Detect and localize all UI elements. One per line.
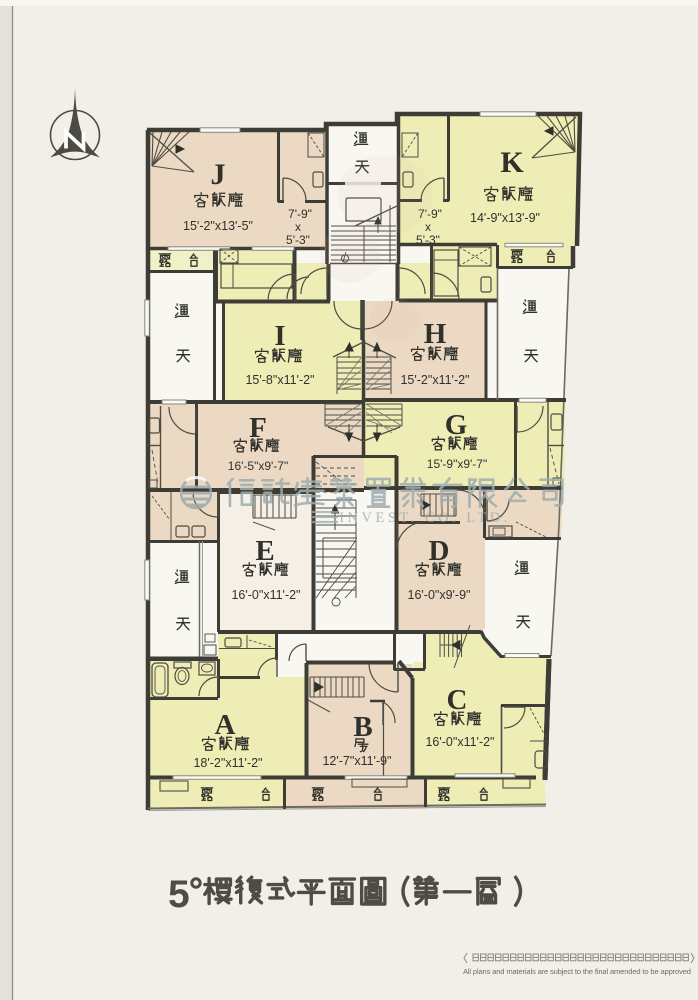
svg-text:I: I [274, 320, 285, 352]
svg-text:D: D [429, 535, 450, 567]
svg-text:15'-8"x11'-2": 15'-8"x11'-2" [245, 373, 314, 387]
svg-text:INVEST. CO. LTD.: INVEST. CO. LTD. [339, 510, 511, 526]
svg-text:14'-9"x13'-9": 14'-9"x13'-9" [470, 211, 540, 225]
svg-text:5'-3": 5'-3" [416, 233, 440, 247]
svg-text:5'-3": 5'-3" [286, 233, 310, 247]
svg-text:E: E [255, 535, 274, 567]
svg-text:15'-2"x13'-5": 15'-2"x13'-5" [183, 219, 253, 233]
svg-text:G: G [445, 409, 468, 441]
svg-text:16'-0"x11'-2": 16'-0"x11'-2" [425, 735, 494, 749]
svg-text:16'-0"x9'-9": 16'-0"x9'-9" [408, 588, 471, 602]
svg-text:18'-2"x11'-2": 18'-2"x11'-2" [193, 756, 262, 770]
svg-text:16'-0"x11'-2": 16'-0"x11'-2" [231, 588, 300, 602]
svg-text:A: A [215, 709, 236, 741]
svg-text:B: B [353, 711, 372, 743]
svg-text:7'-9": 7'-9" [288, 207, 312, 221]
svg-text:C: C [447, 684, 468, 716]
svg-text:x: x [425, 220, 431, 234]
svg-text:K: K [500, 146, 524, 179]
svg-text:5: 5 [168, 873, 190, 916]
svg-text:H: H [424, 318, 447, 350]
svg-text:15'-9"x9'-7": 15'-9"x9'-7" [427, 457, 487, 471]
svg-text:12'-7"x11'-9": 12'-7"x11'-9" [322, 754, 391, 768]
svg-text:16'-5"x9'-7": 16'-5"x9'-7" [228, 459, 288, 473]
svg-text:All plans and materials are su: All plans and materials are subject to t… [463, 967, 691, 976]
svg-text:J: J [211, 158, 226, 191]
svg-text:x: x [295, 220, 301, 234]
svg-text:15'-2"x11'-2": 15'-2"x11'-2" [400, 373, 469, 387]
